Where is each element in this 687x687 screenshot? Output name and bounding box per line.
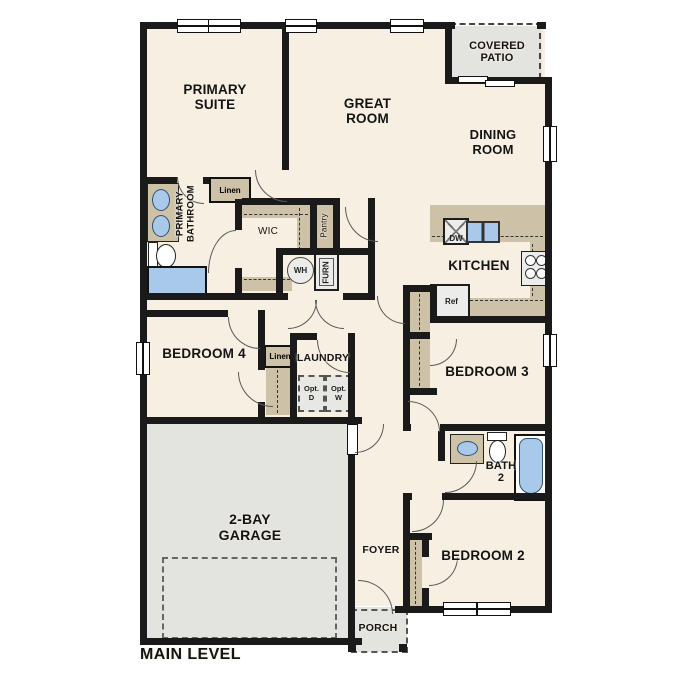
wall [290, 333, 317, 340]
furnace: FURN [314, 253, 339, 291]
wall [147, 293, 288, 300]
wall [140, 638, 362, 645]
room-label-bath2: BATH 2 [478, 460, 524, 485]
window [477, 602, 511, 616]
coat-closet [410, 292, 430, 332]
room-label-primary-suite: PRIMARY SUITE [160, 82, 270, 112]
room-label-bedroom3: BEDROOM 3 [432, 364, 542, 379]
window [543, 334, 557, 367]
wall [410, 388, 437, 395]
porch-post [348, 644, 356, 652]
optional-washer-label: Opt. W [331, 385, 346, 402]
wall [140, 417, 362, 424]
bath-sink-icon [152, 215, 170, 237]
plan-title: MAIN LEVEL [140, 646, 280, 664]
room-label-foyer: FOYER [357, 545, 405, 557]
room-label-porch: PORCH [352, 623, 404, 635]
optional-dryer: Opt. D [298, 375, 325, 412]
window [390, 19, 424, 33]
counter-dash-bottom [470, 300, 543, 301]
wall [343, 293, 375, 300]
wic-dash-bottom [244, 279, 290, 280]
room-label-wic: WIC [250, 226, 286, 237]
bedroom2-closet-rod [415, 542, 416, 604]
closet-label-pantry: Pantry [321, 203, 330, 247]
wall [422, 588, 429, 606]
wall [235, 199, 242, 230]
wall [147, 177, 177, 184]
wall [430, 316, 552, 323]
window [285, 19, 317, 33]
wall [276, 248, 375, 255]
sliding-door-panel [458, 76, 488, 83]
wall [442, 493, 552, 500]
wall [438, 431, 445, 461]
refrigerator: Ref [433, 284, 470, 319]
wall [333, 198, 340, 255]
garage-parking-outline [162, 557, 337, 639]
wall [403, 533, 432, 540]
patio-dashed-edge-right [539, 23, 541, 79]
refrigerator-label: Ref [445, 297, 458, 306]
window [208, 19, 241, 33]
shower-icon [147, 266, 207, 296]
linen-label: Linen [219, 186, 240, 195]
room-label-garage: 2-BAY GARAGE [195, 512, 305, 543]
room-label-primary-bathroom: PRIMARY BATHROOM [175, 172, 196, 256]
room-label-dining-room: DINING ROOM [455, 128, 531, 157]
sliding-door-panel [485, 80, 515, 87]
wall [537, 22, 546, 29]
room-label-laundry: LAUNDRY [293, 353, 353, 365]
bedroom2-closet [410, 540, 422, 606]
wall [140, 22, 147, 645]
optional-dryer-label: Opt. D [304, 385, 319, 402]
room-label-kitchen: KITCHEN [430, 258, 528, 273]
wall [440, 424, 552, 431]
toilet-icon [156, 244, 176, 268]
wall [140, 310, 228, 317]
floor-plan: DW Ref WH FURN Opt. D Opt. W Linen Linen [0, 0, 687, 687]
room-label-great-room: GREAT ROOM [315, 96, 420, 126]
room-label-bedroom2: BEDROOM 2 [428, 548, 538, 563]
wall [282, 22, 289, 170]
kitchen-sink-icon [466, 221, 500, 243]
window [443, 602, 477, 616]
window [543, 126, 557, 162]
bath-sink-icon [152, 189, 170, 211]
bedroom3-closet-rod [419, 341, 420, 386]
furnace-label: FURN [322, 261, 331, 283]
wall [410, 332, 430, 339]
wall [290, 333, 297, 417]
window [177, 19, 209, 33]
wall [348, 452, 355, 645]
room-label-covered-patio: COVERED PATIO [458, 40, 536, 65]
bath2-sink-icon [457, 441, 478, 456]
room-label-bedroom4: BEDROOM 4 [148, 346, 260, 361]
bedroom4-closet-rod [277, 365, 278, 413]
wall [310, 205, 317, 252]
patio-dashed-edge-top [450, 23, 542, 25]
wic-dash-right [299, 208, 300, 250]
dishwasher-label: DW [449, 234, 462, 243]
porch-post [399, 644, 407, 652]
linen-label: Linen [269, 352, 290, 361]
water-heater-label: WH [294, 266, 307, 275]
water-heater: WH [287, 257, 314, 284]
bedroom3-closet [410, 339, 430, 388]
coat-closet-rod [419, 294, 420, 330]
wall [445, 22, 452, 84]
